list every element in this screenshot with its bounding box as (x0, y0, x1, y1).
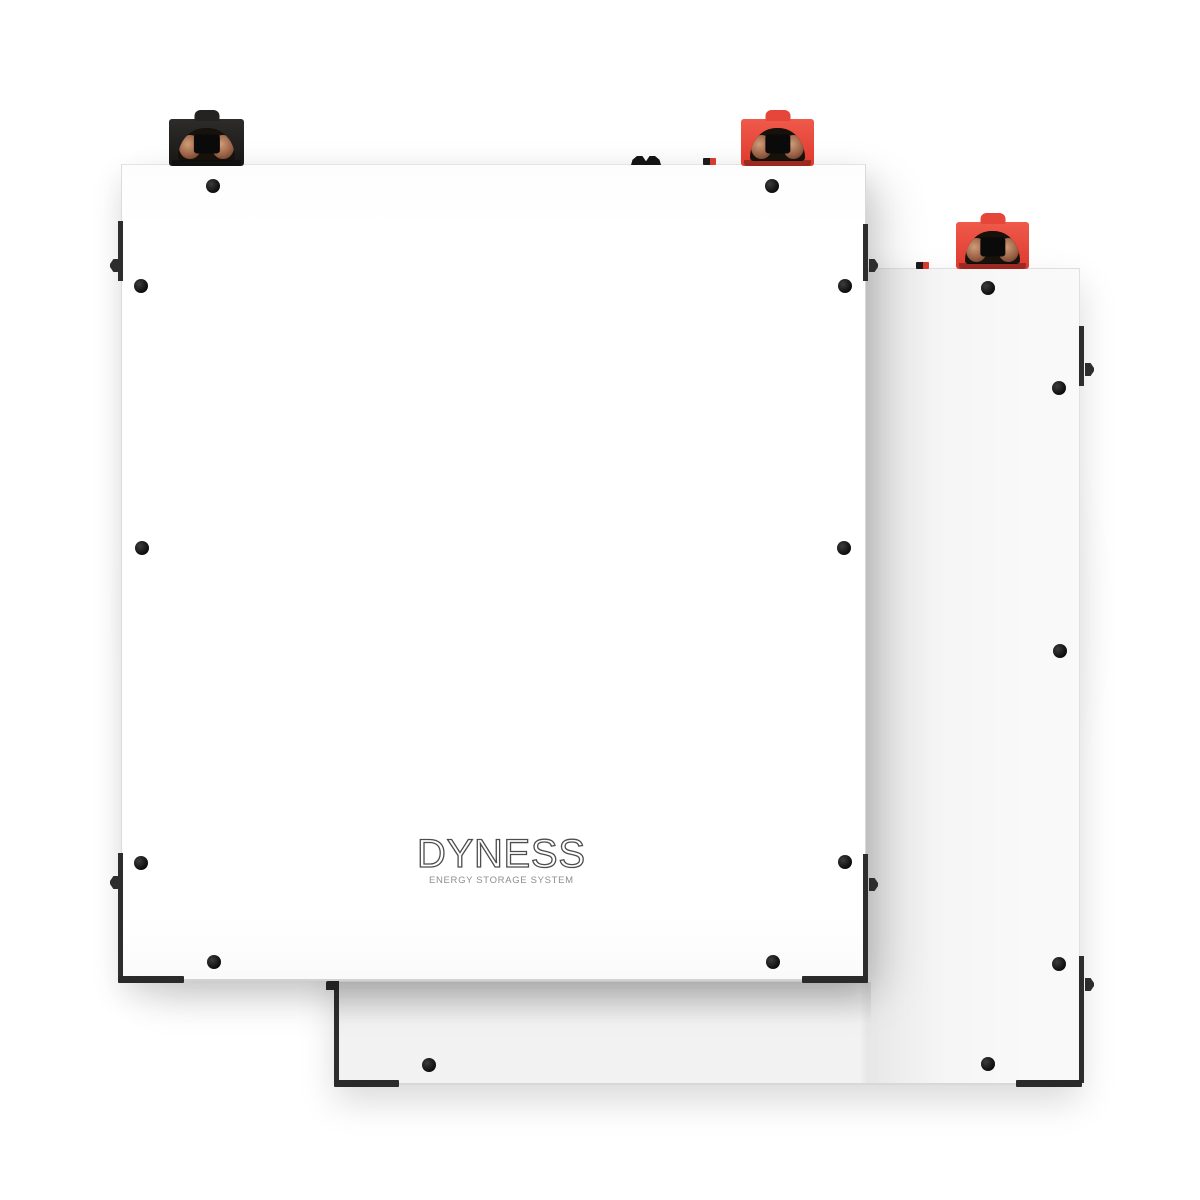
handle-clip-icon (631, 156, 661, 165)
terminal-opening (965, 231, 1020, 264)
terminal-cap-bump (980, 213, 1005, 224)
terminal-cap-bump (194, 110, 219, 121)
bracket-tab-right-lower (1085, 978, 1094, 991)
corner-foot-bottom-right (1016, 1080, 1082, 1087)
terminal-positive-red-icon (956, 222, 1029, 269)
terminal-cap-bump (765, 110, 790, 121)
terminal-bolt (193, 134, 219, 153)
screw (207, 955, 221, 969)
brand-name-text: DYNESS (417, 833, 585, 876)
mounting-bracket-left-lower (334, 981, 339, 1083)
front-unit-cast-shadow (336, 982, 871, 1024)
corner-foot-bottom-left (118, 976, 184, 983)
terminal-negative-black-icon (169, 119, 244, 166)
mounting-bracket-left-lower (118, 853, 123, 979)
terminal-base (744, 160, 811, 166)
brand-logo-svg: DYNESS ENERGY STORAGE SYSTEM (381, 833, 621, 895)
screw (206, 179, 220, 193)
screw (135, 541, 149, 555)
product-photo: DYNESS ENERGY STORAGE SYSTEM (0, 0, 1200, 1200)
mounting-bracket-right-upper (863, 224, 868, 281)
mounting-bracket-left-upper (118, 221, 123, 281)
screw (422, 1058, 436, 1072)
terminal-bolt (765, 134, 790, 153)
terminal-opening (178, 128, 235, 161)
bracket-tab-right-upper (1085, 363, 1094, 376)
screw (766, 955, 780, 969)
brand-logo: DYNESS ENERGY STORAGE SYSTEM (381, 833, 621, 895)
screw (765, 179, 779, 193)
terminal-base (959, 263, 1026, 269)
mounting-bracket-right-upper (1079, 326, 1084, 386)
link-connector-icon (703, 158, 716, 165)
corner-foot-bottom-right (802, 976, 868, 983)
screw (981, 1057, 995, 1071)
screw (838, 279, 852, 293)
screw (981, 281, 995, 295)
bracket-hook-left (326, 981, 339, 990)
bracket-tab-left-lower (110, 876, 119, 889)
terminal-bolt (980, 237, 1005, 256)
screw (1052, 381, 1066, 395)
brand-tagline-text: ENERGY STORAGE SYSTEM (429, 875, 573, 886)
link-connector-icon (916, 262, 929, 269)
battery-unit-front: DYNESS ENERGY STORAGE SYSTEM (121, 164, 866, 981)
screw (1052, 957, 1066, 971)
screw (838, 855, 852, 869)
screw (837, 541, 851, 555)
corner-foot-bottom-left (334, 1080, 399, 1087)
terminal-base (172, 160, 241, 166)
screw (134, 279, 148, 293)
mounting-bracket-right-lower (863, 854, 868, 979)
screw (134, 856, 148, 870)
terminal-opening (750, 128, 805, 161)
bracket-tab-left-upper (110, 259, 119, 272)
terminal-positive-red-icon (741, 119, 814, 166)
screw (1053, 644, 1067, 658)
mounting-bracket-right-lower (1079, 956, 1084, 1083)
